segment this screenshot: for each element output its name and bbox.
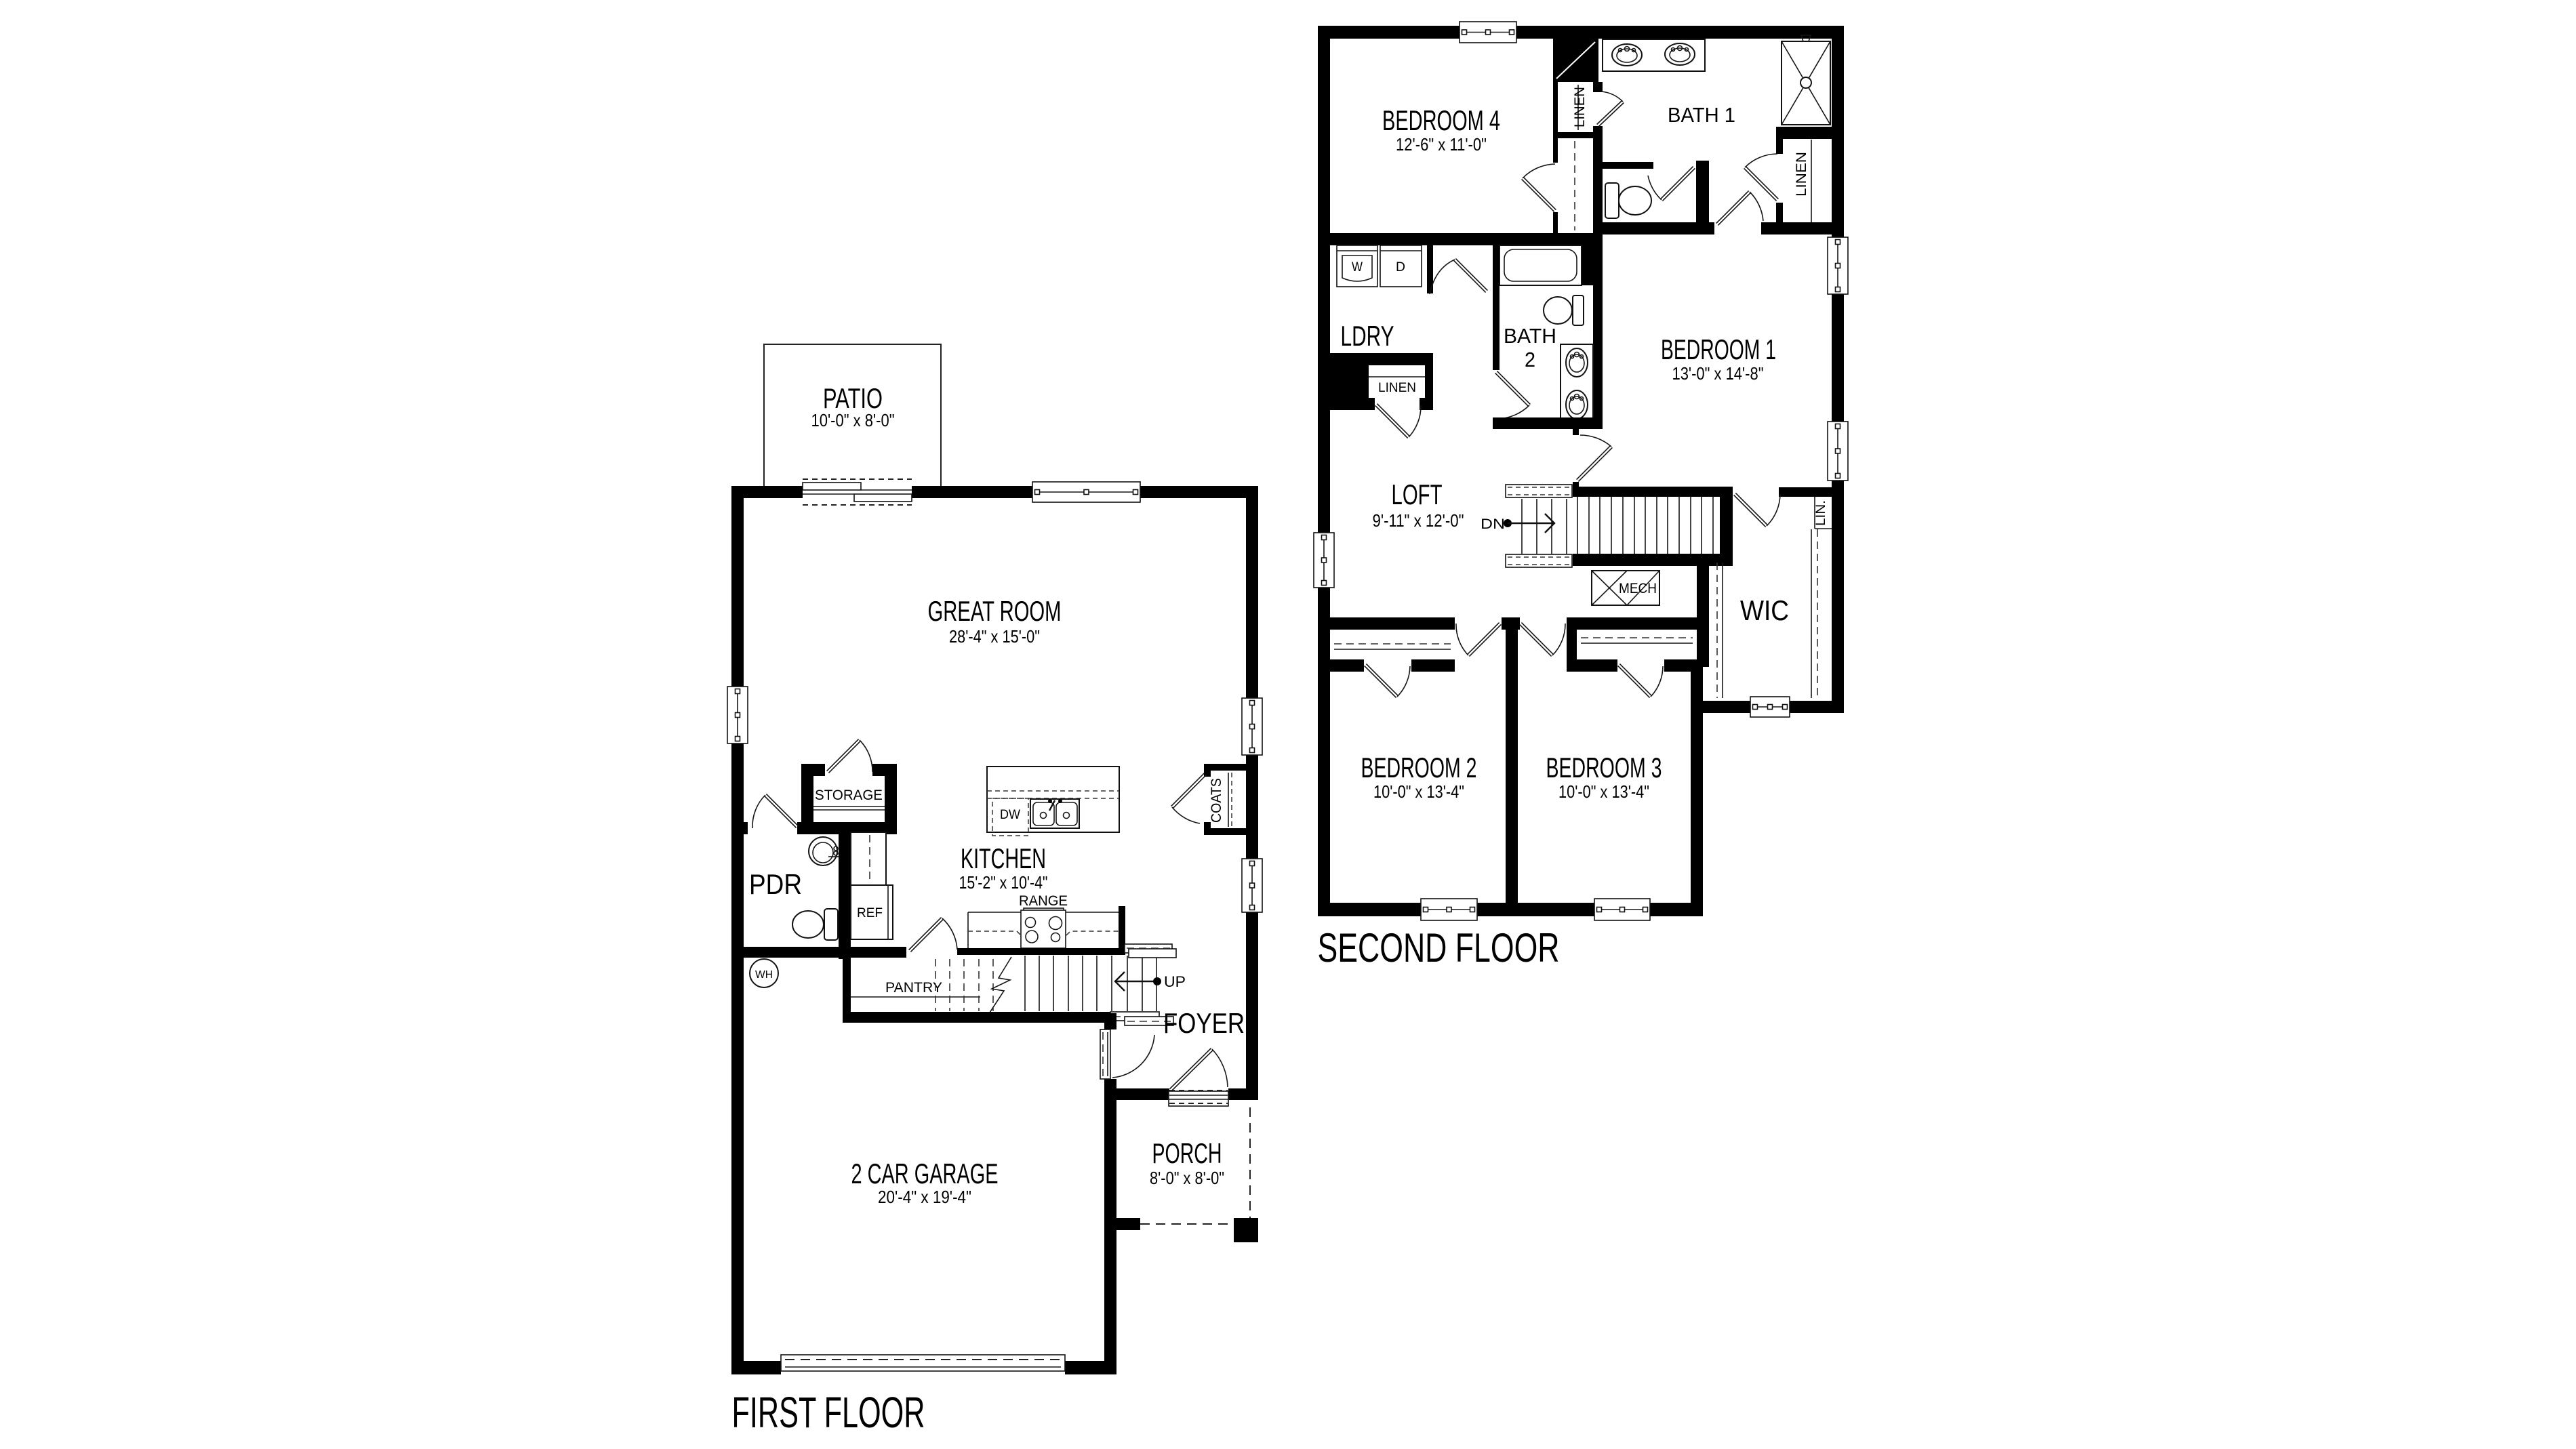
svg-text:20'-4" x 19'-4": 20'-4" x 19'-4": [878, 1187, 971, 1207]
svg-text:MECH: MECH: [1619, 581, 1657, 596]
svg-text:13'-0" x 14'-8": 13'-0" x 14'-8": [1672, 363, 1764, 384]
svg-text:9'-11" x 12'-0": 9'-11" x 12'-0": [1373, 510, 1464, 531]
svg-text:8'-0" x 8'-0": 8'-0" x 8'-0": [1150, 1168, 1224, 1188]
svg-text:PORCH: PORCH: [1152, 1137, 1222, 1169]
svg-text:SECOND FLOOR: SECOND FLOOR: [1318, 925, 1560, 971]
svg-text:LINEN: LINEN: [1378, 381, 1416, 395]
svg-text:BEDROOM 2: BEDROOM 2: [1361, 752, 1477, 783]
svg-text:LOFT: LOFT: [1392, 478, 1443, 510]
svg-text:STORAGE: STORAGE: [815, 788, 883, 803]
svg-text:UP: UP: [1164, 973, 1186, 990]
svg-text:15'-2" x 10'-4": 15'-2" x 10'-4": [959, 872, 1048, 893]
svg-text:D: D: [1396, 260, 1405, 274]
svg-text:DW: DW: [1000, 808, 1020, 822]
svg-text:REF: REF: [857, 906, 883, 920]
svg-text:2: 2: [1525, 348, 1535, 371]
svg-text:BATH: BATH: [1504, 324, 1556, 348]
svg-text:12'-6" x 11'-0": 12'-6" x 11'-0": [1396, 134, 1487, 155]
svg-text:RANGE: RANGE: [1019, 893, 1068, 909]
svg-text:10'-0" x 13'-4": 10'-0" x 13'-4": [1373, 781, 1464, 802]
svg-text:BATH 1: BATH 1: [1668, 103, 1735, 127]
svg-text:LDRY: LDRY: [1341, 320, 1394, 352]
svg-text:FIRST FLOOR: FIRST FLOOR: [732, 1388, 925, 1437]
svg-text:BEDROOM 3: BEDROOM 3: [1546, 752, 1662, 783]
svg-text:PATIO: PATIO: [823, 382, 883, 414]
svg-text:PDR: PDR: [749, 868, 802, 900]
svg-text:W: W: [1352, 260, 1363, 274]
svg-text:10'-0" x 8'-0": 10'-0" x 8'-0": [811, 410, 895, 430]
svg-text:LIN.: LIN.: [1814, 500, 1828, 526]
svg-text:DN: DN: [1481, 516, 1505, 532]
svg-text:WH: WH: [755, 969, 773, 981]
svg-text:PANTRY: PANTRY: [885, 980, 942, 996]
svg-text:28'-4" x 15'-0": 28'-4" x 15'-0": [949, 626, 1040, 647]
svg-text:BEDROOM 1: BEDROOM 1: [1661, 333, 1776, 365]
svg-text:BEDROOM 4: BEDROOM 4: [1382, 104, 1500, 136]
svg-text:LINEN: LINEN: [1572, 87, 1588, 127]
svg-text:2 CAR GARAGE: 2 CAR GARAGE: [851, 1158, 999, 1189]
svg-text:WIC: WIC: [1740, 594, 1789, 626]
svg-text:LINEN: LINEN: [1794, 152, 1809, 197]
svg-text:COATS: COATS: [1209, 778, 1224, 823]
svg-text:FOYER: FOYER: [1163, 1007, 1245, 1039]
svg-text:KITCHEN: KITCHEN: [961, 842, 1046, 874]
svg-text:GREAT ROOM: GREAT ROOM: [928, 595, 1062, 627]
svg-text:10'-0" x 13'-4": 10'-0" x 13'-4": [1558, 781, 1649, 802]
